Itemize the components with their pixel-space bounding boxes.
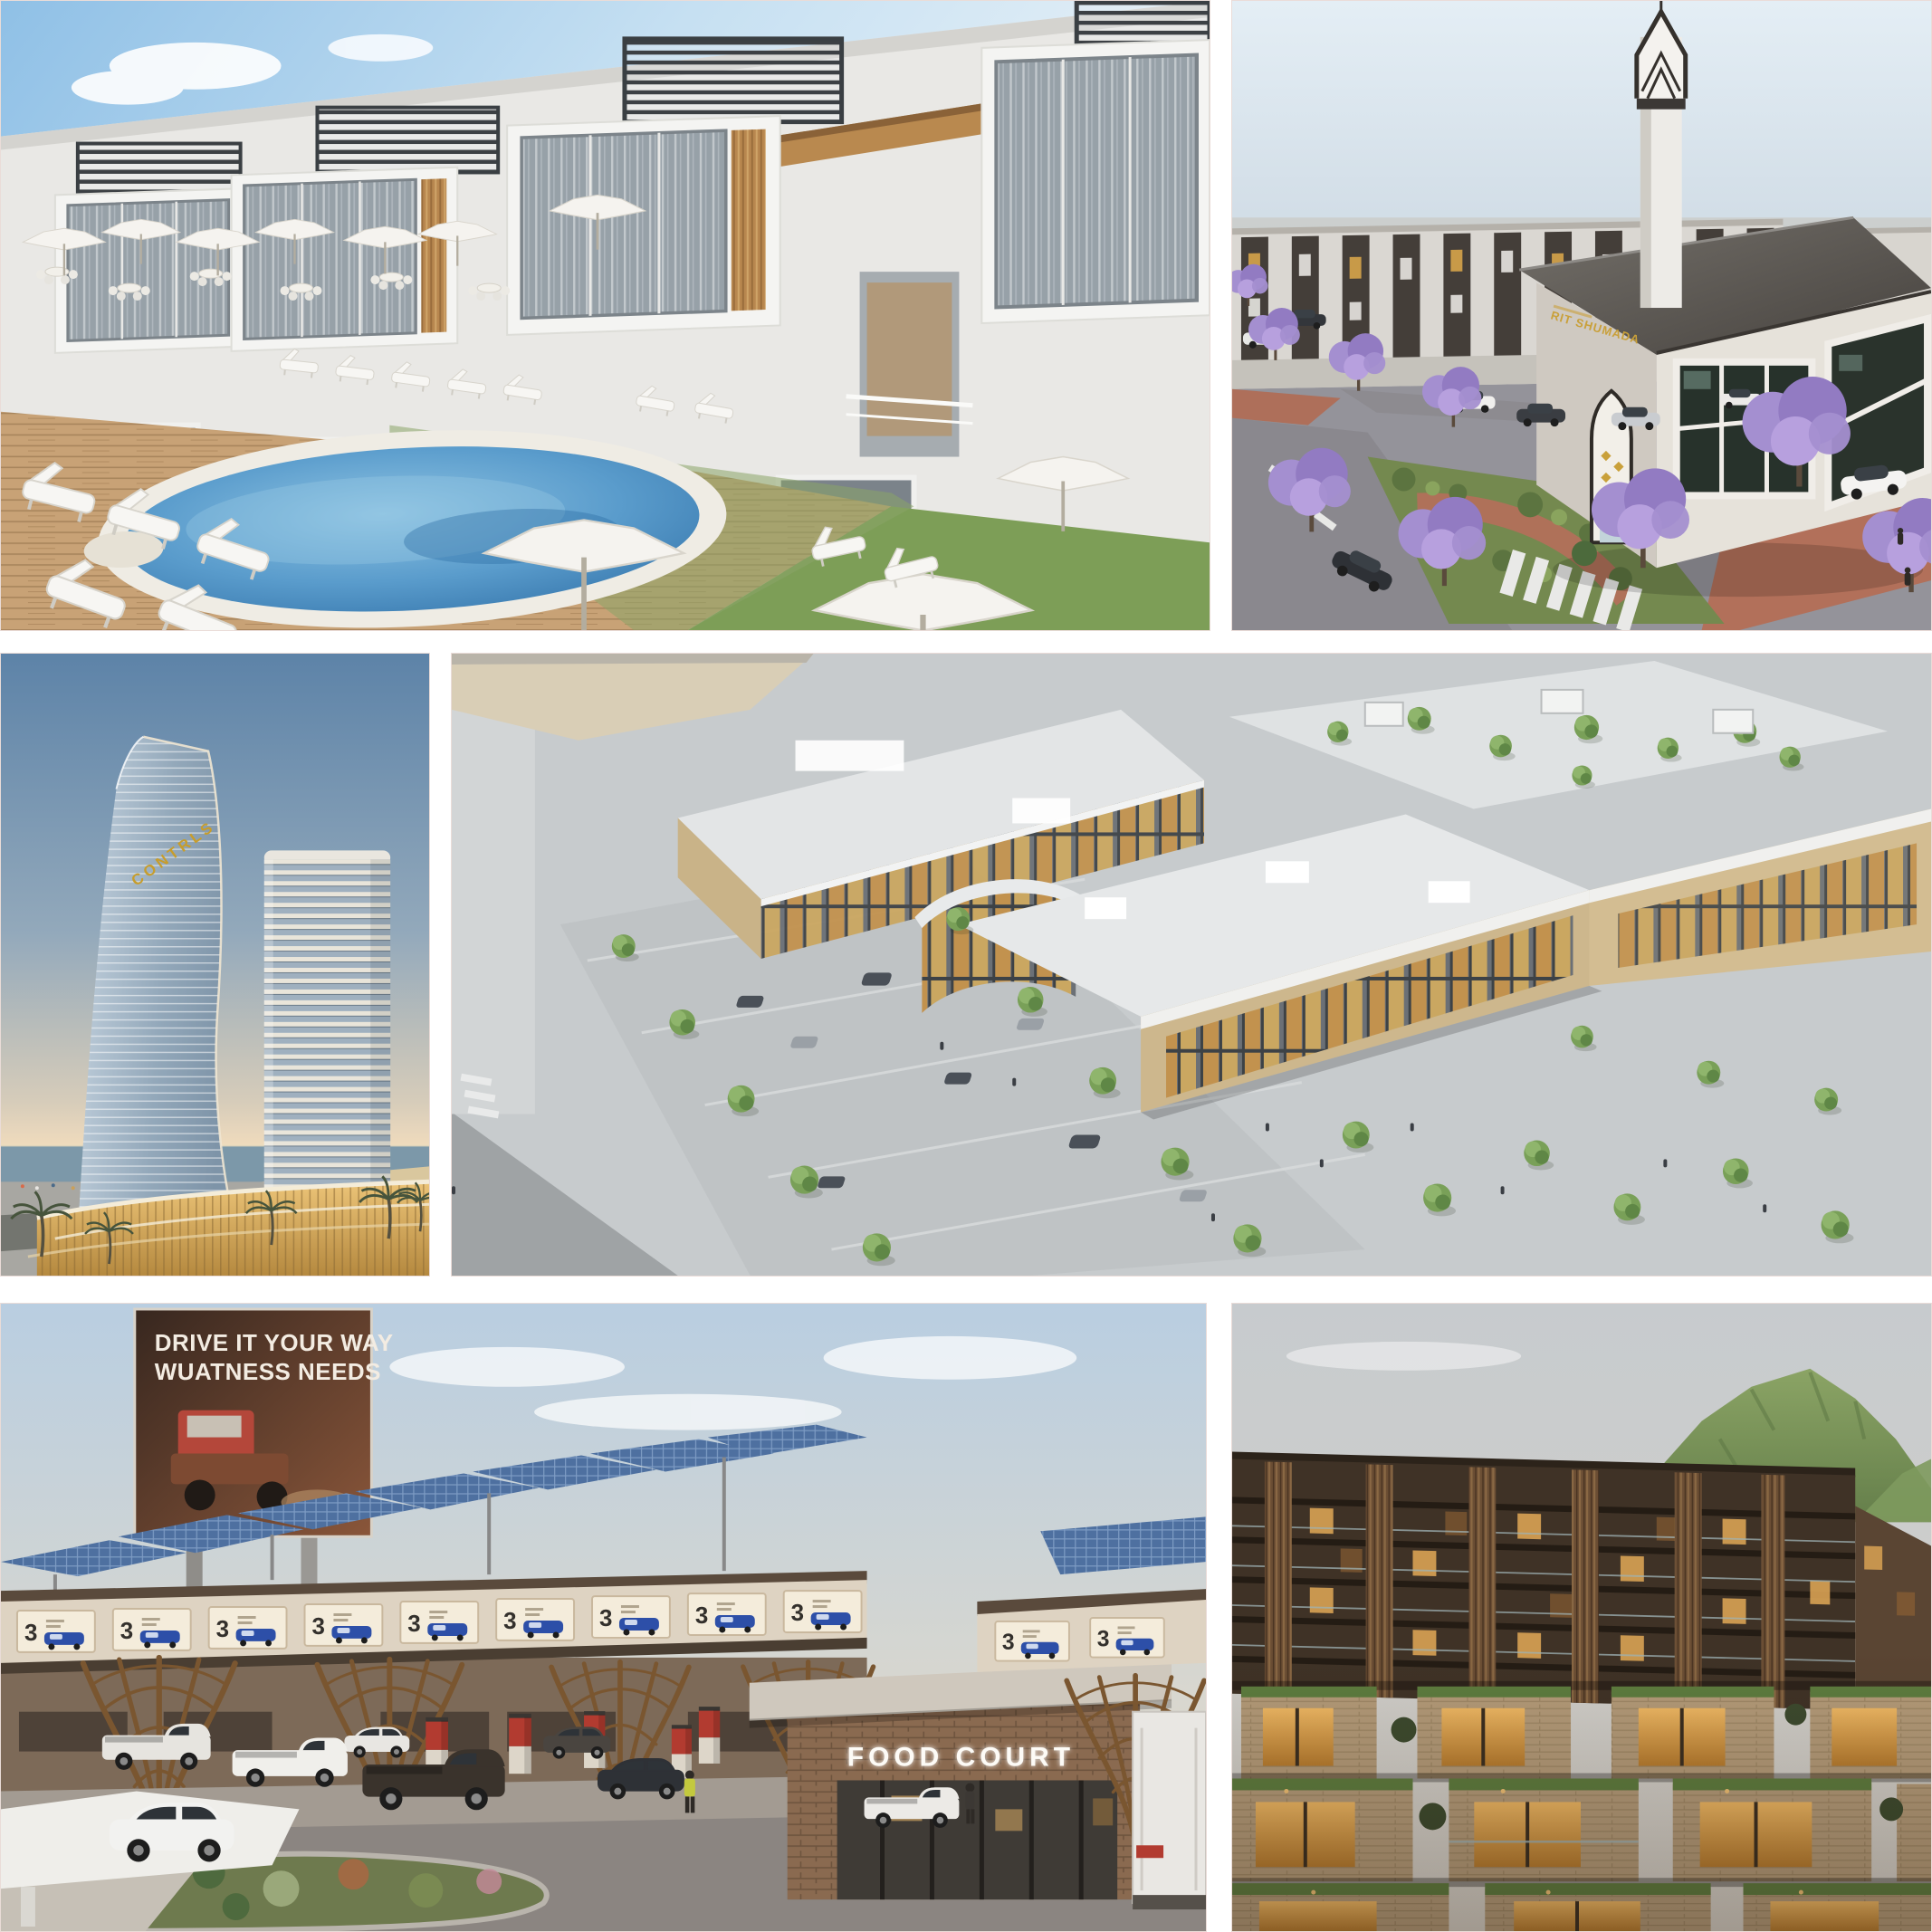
panel-truck-stop: 3 [0, 1303, 1207, 1932]
box-truck [1133, 1712, 1206, 1909]
food-court-sign: FOOD COURT [847, 1743, 1075, 1773]
truck-stop-render: 3 [1, 1304, 1206, 1931]
mall-render [452, 654, 1931, 1276]
panel-villas-pool [0, 0, 1210, 631]
balcony-tower [264, 850, 390, 1206]
entry-plant [1572, 540, 1597, 566]
food-court-building: FOOD COURT FOOD COURT [750, 1663, 1172, 1899]
bay-window-4 [981, 40, 1210, 323]
mosque-render: RIT SHUMADA [1232, 1, 1931, 630]
panel-terraced-residences [1231, 1303, 1932, 1932]
towers-render: CONTRLS [1, 654, 429, 1276]
billboard-line2: WUATNESS NEEDS [155, 1360, 381, 1385]
project-render-collage: RIT SHUMADA [0, 0, 1932, 1932]
terraced-render [1232, 1304, 1931, 1931]
balcony-recess [846, 272, 973, 456]
villas-pool-render [1, 1, 1210, 630]
billboard-line1: DRIVE IT YOUR WAY [155, 1331, 394, 1356]
panel-mosque-community: RIT SHUMADA [1231, 0, 1932, 631]
bay-window-3 [507, 116, 780, 335]
side-lot [452, 708, 535, 1114]
panel-twin-towers: CONTRLS [0, 653, 430, 1277]
bay-window-2 [232, 167, 458, 351]
dusk-overlay [1232, 1304, 1931, 1931]
panel-mall-aerial [451, 653, 1932, 1277]
minaret [1637, 1, 1686, 308]
